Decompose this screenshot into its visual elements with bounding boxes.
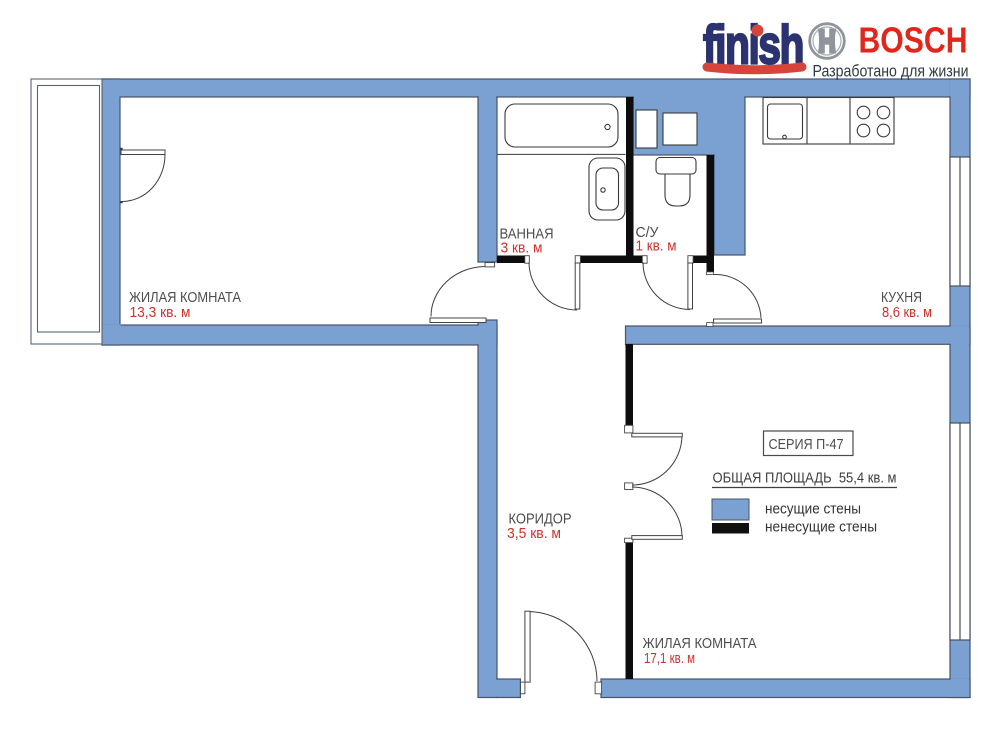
svg-text:ЖИЛАЯ КОМНАТА: ЖИЛАЯ КОМНАТА [129, 290, 241, 306]
svg-text:1 кв. м: 1 кв. м [636, 239, 677, 255]
svg-text:СЕРИЯ П-47: СЕРИЯ П-47 [769, 437, 844, 453]
svg-text:BOSCH: BOSCH [859, 20, 968, 61]
svg-text:несущие стены: несущие стены [765, 501, 861, 518]
svg-text:КУХНЯ: КУХНЯ [881, 290, 922, 306]
svg-text:17,1 кв. м: 17,1 кв. м [644, 651, 695, 667]
svg-text:8,6 кв. м: 8,6 кв. м [882, 305, 932, 321]
svg-text:ненесущие стены: ненесущие стены [765, 519, 877, 536]
svg-text:ОБЩАЯ ПЛОЩАДЬ 55,4 кв. м: ОБЩАЯ ПЛОЩАДЬ 55,4 кв. м [713, 470, 897, 487]
svg-text:3,5 кв. м: 3,5 кв. м [507, 526, 561, 542]
svg-text:Разработано для жизни: Разработано для жизни [813, 63, 969, 81]
svg-text:13,3 кв. м: 13,3 кв. м [130, 305, 191, 321]
svg-text:3 кв. м: 3 кв. м [501, 241, 543, 257]
svg-text:ЖИЛАЯ КОМНАТА: ЖИЛАЯ КОМНАТА [643, 636, 757, 652]
